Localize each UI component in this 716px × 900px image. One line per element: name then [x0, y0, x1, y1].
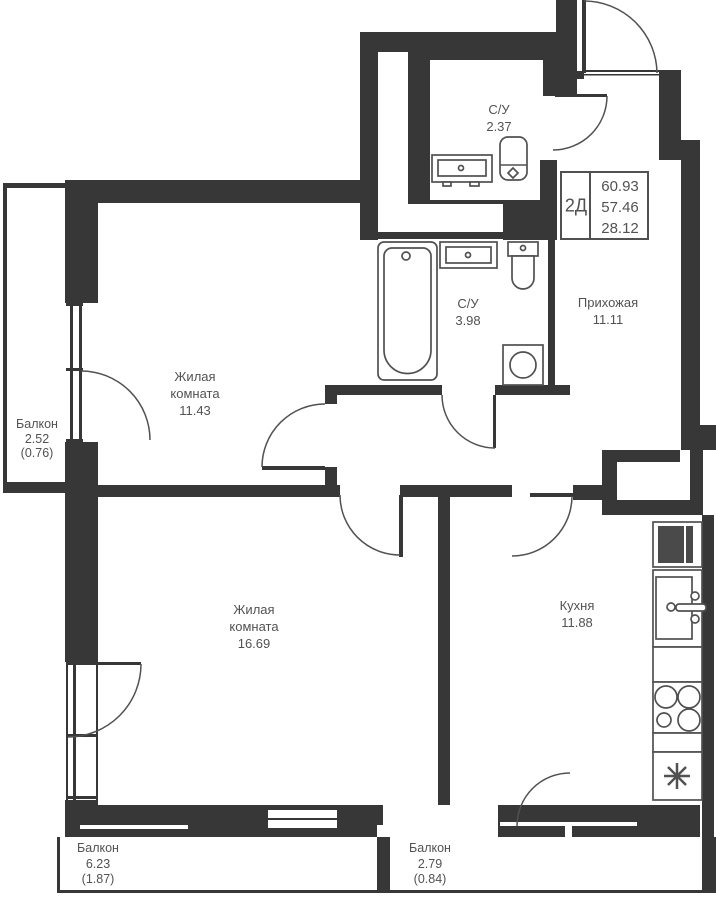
washing-machine-icon — [503, 345, 543, 385]
room-label-balcony-bottom-right: Балкон 2.79 (0.84) — [409, 841, 451, 888]
toilet-icon-bath-big — [508, 242, 538, 289]
apartment-areas: 60.93 57.46 28.12 — [601, 176, 639, 239]
area-kitchen: 28.12 — [601, 218, 639, 239]
room-label-hallway: Прихожая 11.11 — [578, 294, 638, 328]
room-label-balcony-left: Балкон 2.52 (0.76) — [16, 417, 58, 461]
door-living1 — [262, 404, 325, 470]
walls — [3, 0, 716, 893]
area-living: 57.46 — [601, 197, 639, 218]
kitchen-counter2-icon — [653, 733, 702, 752]
kitchen-counter-icon — [653, 647, 702, 682]
door-bath-small — [553, 94, 607, 150]
floor-plan-drawing — [0, 0, 716, 900]
vanity-icon-bath-small — [432, 155, 492, 186]
vanity-icon-bath-big — [440, 242, 497, 268]
room-label-living1: Жилая комната 11.43 — [170, 368, 219, 419]
door-bath-big — [442, 395, 496, 448]
fridge-icon — [653, 522, 702, 567]
door-kitchen — [512, 493, 573, 556]
boiler-icon — [653, 752, 702, 800]
room-label-kitchen: Кухня 11.88 — [560, 597, 595, 631]
entrance-door — [582, 0, 657, 73]
room-label-balcony-bottom-left: Балкон 6.23 (1.87) — [77, 841, 119, 888]
stove-icon — [653, 682, 702, 733]
entrance-threshold — [584, 70, 659, 76]
room-label-living2: Жилая комната 16.69 — [229, 601, 278, 652]
room-label-bath-small: С/У 2.37 — [486, 101, 511, 135]
toilet-icon-bath-small — [500, 137, 527, 180]
bathtub-icon — [378, 242, 437, 380]
door-living2 — [340, 495, 403, 557]
window-living2-bottom — [268, 818, 337, 820]
area-total: 60.93 — [601, 176, 639, 197]
room-label-bath-big: С/У 3.98 — [455, 295, 480, 329]
kitchen-sink-icon — [653, 570, 706, 647]
apartment-type-label: 2Д — [565, 196, 587, 217]
floor-plan: 2Д 60.93 57.46 28.12 С/У 2.37 С/У 3.98 П… — [0, 0, 716, 900]
